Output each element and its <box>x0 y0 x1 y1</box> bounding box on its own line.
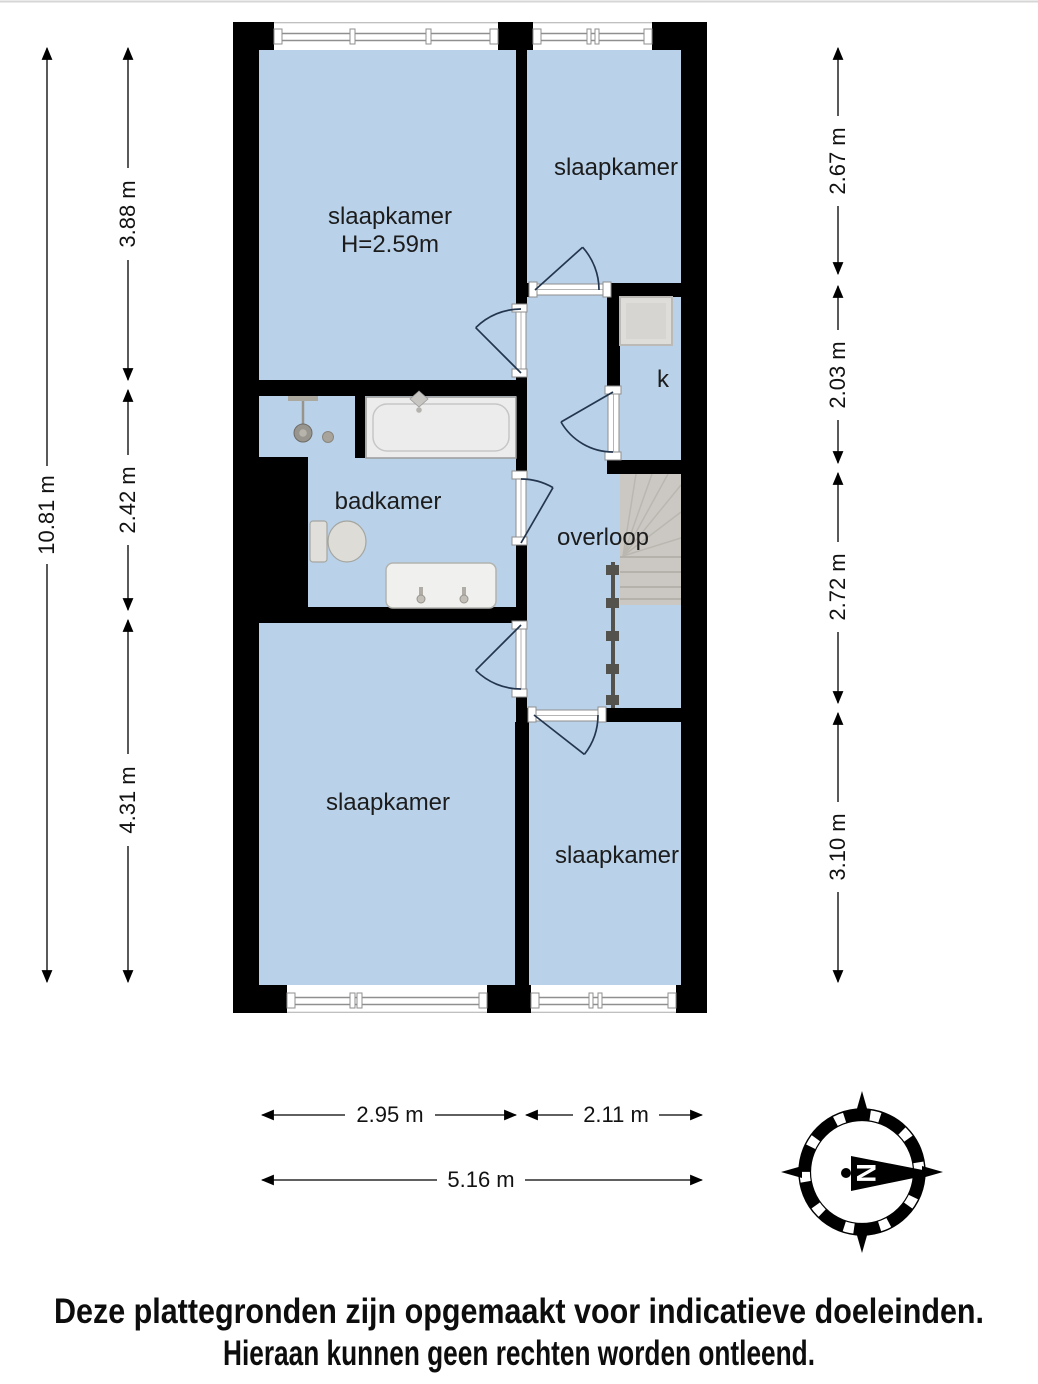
dimension-left-segment-2: 2.42 m <box>115 466 140 533</box>
dimension-right-segment-3: 2.72 m <box>825 553 850 620</box>
room-label-badkamer: badkamer <box>335 488 442 515</box>
room-label-overloop: overloop <box>557 524 649 551</box>
shower-partition <box>355 396 365 458</box>
disclaimer: Deze plattegronden zijn opgemaakt voor i… <box>54 1292 984 1373</box>
toilet <box>310 521 366 562</box>
room-label-slaapkamer-top-right: slaapkamer <box>554 154 678 181</box>
compass-spike-left <box>781 1166 802 1178</box>
room-label-slaapkamer-top-left: slaapkamer <box>328 203 452 230</box>
dimension-right-segment-4: 3.10 m <box>825 813 850 880</box>
shower-drain-icon <box>323 432 334 443</box>
disclaimer-line-2: Hieraan kunnen geen rechten worden ontle… <box>223 1334 815 1373</box>
compass-spike-top <box>856 1091 868 1112</box>
room-label-slaapkamer-bottom-right: slaapkamer <box>555 842 679 869</box>
dimension-bottom-segment-2: 2.11 m <box>583 1102 649 1127</box>
dimension-left-total: 10.81 m <box>34 475 59 555</box>
dimension-right-segment-2: 2.03 m <box>825 341 850 408</box>
dimension-left-segment-3: 4.31 m <box>115 766 140 833</box>
bathtub <box>366 391 516 458</box>
floorplan-drawing: slaapkamer H=2.59m slaapkamer badkamer o… <box>0 0 1038 1384</box>
boiler-unit <box>620 297 672 345</box>
compass-north-label: N <box>851 1163 881 1183</box>
dimension-right-segment-1: 2.67 m <box>825 127 850 194</box>
compass-rose: N <box>781 1091 943 1253</box>
room-label-slaapkamer-bottom-left: slaapkamer <box>326 789 450 816</box>
compass-spike-bottom <box>856 1232 868 1253</box>
dimension-left-segment-1: 3.88 m <box>115 180 140 247</box>
disclaimer-line-1: Deze plattegronden zijn opgemaakt voor i… <box>54 1292 984 1331</box>
shaft-block <box>233 457 308 607</box>
sink <box>386 563 496 608</box>
room-height-note: H=2.59m <box>341 231 439 258</box>
room-label-closet: k <box>657 366 670 393</box>
dimension-bottom-segment-1: 2.95 m <box>356 1102 423 1127</box>
floorplan-page: slaapkamer H=2.59m slaapkamer badkamer o… <box>0 0 1038 1384</box>
floor-plan: slaapkamer H=2.59m slaapkamer badkamer o… <box>233 22 707 1013</box>
dimension-bottom-total: 5.16 m <box>447 1167 514 1192</box>
